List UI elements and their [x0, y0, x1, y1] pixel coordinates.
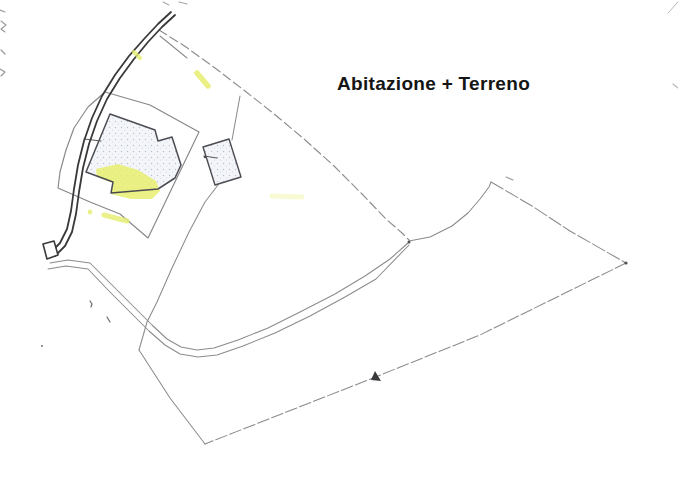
- parcel-boundary-north: [159, 30, 409, 240]
- map-speck-comma: [90, 301, 92, 307]
- farm-track-lower-edge: [48, 245, 409, 357]
- annex-tick-dot: [204, 156, 207, 159]
- parcel-boundary-northeast-curve: [409, 182, 491, 241]
- parcel-boundary-northeast: [491, 182, 626, 263]
- farm-track-upper-edge: [50, 243, 408, 350]
- road-end-cap: [43, 241, 58, 259]
- highlight-mark-lower: [104, 215, 127, 221]
- scan-artifact-left-2: [1, 21, 6, 32]
- map-speck-tick: [107, 317, 110, 322]
- map-speck-dot: [41, 345, 43, 347]
- scan-artifact-left-3: [1, 50, 5, 54]
- scan-artifact-top-1: [163, 2, 169, 5]
- cadastral-map-page: Abitazione + Terreno: [0, 0, 678, 482]
- annex-building: [203, 139, 241, 185]
- survey-arrow-mark: [371, 371, 381, 381]
- highlight-dot: [88, 210, 93, 215]
- track-vertex-dot: [408, 241, 411, 244]
- scan-artifact-left-1: [0, 10, 5, 12]
- scan-artifact-left-4: [0, 69, 5, 76]
- annex-connector-line: [232, 96, 240, 140]
- scan-artifact-top-2: [179, 2, 187, 4]
- highlight-mark-faint: [272, 196, 302, 197]
- parcel-boundary-west: [139, 185, 218, 350]
- scan-artifact-corner: [668, 2, 678, 13]
- map-features-layer: [0, 2, 678, 444]
- map-title-label: Abitazione + Terreno: [337, 73, 530, 95]
- highlight-mark-upper: [197, 73, 208, 86]
- parcel-boundary-southwest: [139, 350, 205, 444]
- parcel-boundary-southeast: [205, 263, 626, 444]
- map-speck-peak: [506, 177, 513, 180]
- scan-artifact-right: [673, 84, 678, 88]
- boundary-vertex-dot: [624, 261, 627, 264]
